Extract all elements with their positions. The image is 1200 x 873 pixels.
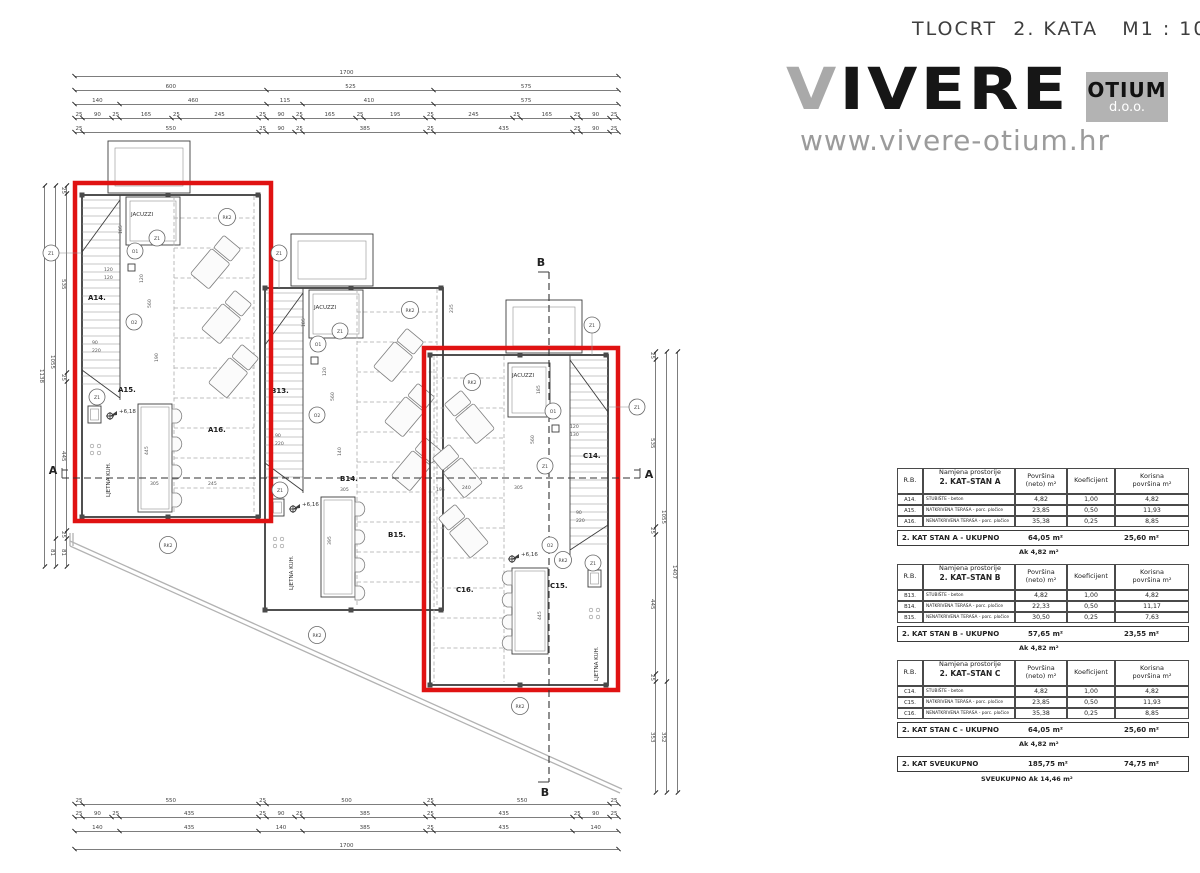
svg-text:195: 195 xyxy=(436,487,445,493)
header-name-line1: Namjena prostorije xyxy=(939,661,1001,669)
table-b-ak: Ak 4,82 m² xyxy=(1019,644,1189,653)
logo-otium-box: OTIUM d.o.o. xyxy=(1086,72,1168,122)
total-label: 2. KAT STAN B - UKUPNO xyxy=(898,630,1028,638)
header-area: Površina(neto) m² xyxy=(1015,564,1067,590)
cell-useful: 4,82 xyxy=(1115,686,1189,697)
cell-rb: B15. xyxy=(897,612,923,623)
level-b-label: +6,16 xyxy=(302,502,319,508)
table-b-total: 2. KAT STAN B - UKUPNO 57,65 m² 23,55 m² xyxy=(897,626,1189,642)
total-label: 2. KAT STAN A - UKUPNO xyxy=(898,534,1028,542)
cell-coef: 1,00 xyxy=(1067,686,1115,697)
logo-v-letter: V xyxy=(786,55,840,123)
cell-rb: A14. xyxy=(897,494,923,505)
cell-coef: 0,25 xyxy=(1067,612,1115,623)
cell-coef: 0,25 xyxy=(1067,516,1115,527)
room-a15-label: A15. xyxy=(118,386,136,394)
header-area: Površina(neto) m² xyxy=(1015,660,1067,686)
svg-text:120: 120 xyxy=(322,367,328,376)
svg-text:Z1: Z1 xyxy=(589,323,595,329)
svg-text:90: 90 xyxy=(275,433,281,439)
svg-text:305: 305 xyxy=(340,487,349,493)
header-use-line2: površina m² xyxy=(1133,481,1172,489)
header-subtitle-c: 2. KAT–STAN C xyxy=(940,669,1001,678)
cell-name: NATKRIVENA TERASA - porc. pločice xyxy=(923,601,1015,612)
svg-text:560: 560 xyxy=(330,392,336,401)
svg-text:235: 235 xyxy=(449,304,455,313)
cell-area: 4,82 xyxy=(1015,686,1067,697)
total-useful: 25,60 m² xyxy=(1124,534,1188,542)
header-coef: Koeficijent xyxy=(1067,468,1115,494)
table-row: A16. NENATKRIVENA TERASA - porc. pločice… xyxy=(897,516,1189,527)
plot-boundary xyxy=(70,533,622,793)
cell-name: STUBIŠTE - beton xyxy=(923,494,1015,505)
logo-doo-text: d.o.o. xyxy=(1109,101,1145,115)
section-a-a: A A xyxy=(49,464,654,481)
cell-name: NATKRIVENA TERASA - porc. pločice xyxy=(923,697,1015,708)
level-mark-a xyxy=(106,411,117,420)
svg-text:O2: O2 xyxy=(547,543,554,549)
cell-rb: A15. xyxy=(897,505,923,516)
table-c-ak: Ak 4,82 m² xyxy=(1019,740,1189,749)
cell-area: 35,38 xyxy=(1015,516,1067,527)
cell-area: 23,85 xyxy=(1015,505,1067,516)
svg-text:Z1: Z1 xyxy=(94,395,100,401)
cell-useful: 11,17 xyxy=(1115,601,1189,612)
svg-text:RK2: RK2 xyxy=(163,543,172,549)
cell-coef: 1,00 xyxy=(1067,494,1115,505)
cell-area: 23,85 xyxy=(1015,697,1067,708)
svg-text:O1: O1 xyxy=(550,409,557,415)
svg-text:O1: O1 xyxy=(132,249,139,255)
section-a-label-left: A xyxy=(49,464,58,477)
header-coef: Koeficijent xyxy=(1067,660,1115,686)
summary-total: 2. KAT SVEUKUPNO 185,75 m² 74,75 m² xyxy=(897,756,1189,772)
cell-useful: 4,82 xyxy=(1115,494,1189,505)
jacuzzi-b-label: JACUZZI xyxy=(313,305,336,311)
drawing-sheet: TLOCRT 2. KATA M1 : 100 VIVERE OTIUM d.o… xyxy=(0,0,1200,873)
svg-text:185: 185 xyxy=(536,385,542,394)
total-useful: 25,60 m² xyxy=(1124,726,1188,734)
company-url: www.vivere-otium.hr xyxy=(800,124,1110,157)
svg-text:560: 560 xyxy=(147,299,153,308)
svg-text:395: 395 xyxy=(327,536,333,545)
table-stan-c: R.B. Namjena prostorije2. KAT–STAN C Pov… xyxy=(897,660,1189,749)
svg-text:RK2: RK2 xyxy=(467,380,476,386)
cell-area: 4,82 xyxy=(1015,494,1067,505)
cell-rb: A16. xyxy=(897,516,923,527)
table-b-body: B13. STUBIŠTE - beton 4,82 1,00 4,82 B14… xyxy=(897,590,1189,623)
table-c-total: 2. KAT STAN C - UKUPNO 64,05 m² 25,60 m² xyxy=(897,722,1189,738)
svg-text:185: 185 xyxy=(118,225,124,234)
section-b-b: B B xyxy=(537,256,549,799)
table-a-ak: Ak 4,82 m² xyxy=(1019,548,1189,557)
svg-text:Z1: Z1 xyxy=(337,329,343,335)
svg-text:305: 305 xyxy=(150,481,159,487)
kitchen-b-label: LJETNA KUH. xyxy=(289,555,295,590)
cell-name: NATKRIVENA TERASA - porc. pločice xyxy=(923,505,1015,516)
table-b-header: R.B. Namjena prostorije2. KAT–STAN B Pov… xyxy=(897,564,1189,590)
summary-label: 2. KAT SVEUKUPNO xyxy=(898,760,1028,768)
header-useful: Korisnapovršina m² xyxy=(1115,564,1189,590)
svg-text:Z1: Z1 xyxy=(154,236,160,242)
cell-coef: 0,50 xyxy=(1067,505,1115,516)
header-subtitle-b: 2. KAT–STAN B xyxy=(940,573,1001,582)
table-row: C14. STUBIŠTE - beton 4,82 1,00 4,82 xyxy=(897,686,1189,697)
unit-c: JACUZZI C14. C15. C16. +6,16 LJETNA KUH.… xyxy=(428,300,609,688)
table-row: C15. NATKRIVENA TERASA - porc. pločice 2… xyxy=(897,697,1189,708)
svg-text:130: 130 xyxy=(570,432,579,438)
header-use-line2: površina m² xyxy=(1133,577,1172,585)
svg-text:RK2: RK2 xyxy=(312,633,321,639)
header-area-line2: (neto) m² xyxy=(1026,577,1057,585)
table-summary: 2. KAT SVEUKUPNO 185,75 m² 74,75 m² SVEU… xyxy=(897,756,1189,783)
cell-rb: C16. xyxy=(897,708,923,719)
kitchen-c-label: LJETNA KUH. xyxy=(594,646,600,681)
kitchen-a-label: LJETNA KUH. xyxy=(106,462,112,497)
svg-text:120: 120 xyxy=(104,267,113,273)
svg-text:Z1: Z1 xyxy=(542,464,548,470)
cell-useful: 8,85 xyxy=(1115,516,1189,527)
summer-kitchen-b xyxy=(271,497,365,600)
loungers-c xyxy=(431,390,494,558)
cell-area: 35,38 xyxy=(1015,708,1067,719)
summer-kitchen-c xyxy=(502,568,601,654)
summer-kitchen-a xyxy=(88,404,182,512)
svg-text:RK2: RK2 xyxy=(515,704,524,710)
svg-text:120: 120 xyxy=(104,275,113,281)
header-area: Površina(neto) m² xyxy=(1015,468,1067,494)
header-rb: R.B. xyxy=(897,564,923,590)
table-stan-b: R.B. Namjena prostorije2. KAT–STAN B Pov… xyxy=(897,564,1189,653)
header-useful: Korisnapovršina m² xyxy=(1115,468,1189,494)
svg-text:220: 220 xyxy=(576,518,585,524)
logo-otium-text: OTIUM xyxy=(1087,80,1166,101)
cell-area: 4,82 xyxy=(1015,590,1067,601)
table-c-body: C14. STUBIŠTE - beton 4,82 1,00 4,82 C15… xyxy=(897,686,1189,719)
unit-a: JACUZZI A14. A15. A16. +6,18 LJETNA KUH.… xyxy=(80,141,261,520)
svg-text:Z1: Z1 xyxy=(48,251,54,257)
table-a-header: R.B. Namjena prostorije2. KAT–STAN A Pov… xyxy=(897,468,1189,494)
fixture-c xyxy=(552,425,559,432)
section-b-label-top: B xyxy=(537,256,545,269)
room-a16-label: A16. xyxy=(208,426,226,434)
room-b14-label: B14. xyxy=(340,475,358,483)
cell-area: 22,33 xyxy=(1015,601,1067,612)
svg-text:560: 560 xyxy=(530,435,536,444)
total-useful: 23,55 m² xyxy=(1124,630,1188,638)
header-name-line1: Namjena prostorije xyxy=(939,565,1001,573)
header-subtitle-a: 2. KAT–STAN A xyxy=(939,477,1000,486)
summary-area: 185,75 m² xyxy=(1028,760,1100,768)
svg-text:RK2: RK2 xyxy=(558,558,567,564)
cell-area: 30,50 xyxy=(1015,612,1067,623)
cell-useful: 8,85 xyxy=(1115,708,1189,719)
svg-text:Z1: Z1 xyxy=(277,488,283,494)
cell-useful: 11,93 xyxy=(1115,505,1189,516)
table-stan-a: R.B. Namjena prostorije2. KAT–STAN A Pov… xyxy=(897,468,1189,557)
svg-text:140: 140 xyxy=(337,447,343,456)
header-coef: Koeficijent xyxy=(1067,564,1115,590)
level-c-label: +6,16 xyxy=(521,552,538,558)
svg-text:305: 305 xyxy=(514,485,523,491)
svg-text:Z1: Z1 xyxy=(276,251,282,257)
room-b13-label: B13. xyxy=(271,387,289,395)
header-area-line2: (neto) m² xyxy=(1026,673,1057,681)
cell-name: NENATKRIVENA TERASA - porc. pločice xyxy=(923,612,1015,623)
svg-text:190: 190 xyxy=(154,353,160,362)
header-rb: R.B. xyxy=(897,468,923,494)
room-c14-label: C14. xyxy=(583,452,601,460)
summary-ak: SVEUKUPNO Ak 14,46 m² xyxy=(981,775,1189,783)
header-name: Namjena prostorije2. KAT–STAN A xyxy=(923,468,1015,494)
level-mark-b xyxy=(289,504,300,513)
cell-name: NENATKRIVENA TERASA - porc. pločice xyxy=(923,708,1015,719)
cell-useful: 4,82 xyxy=(1115,590,1189,601)
header-name-line1: Namjena prostorije xyxy=(939,469,1001,477)
total-label: 2. KAT STAN C - UKUPNO xyxy=(898,726,1028,734)
room-c15-label: C15. xyxy=(550,582,568,590)
header-name: Namjena prostorije2. KAT–STAN B xyxy=(923,564,1015,590)
svg-text:90: 90 xyxy=(576,510,582,516)
cell-rb: B14. xyxy=(897,601,923,612)
room-c16-label: C16. xyxy=(456,586,474,594)
level-mark-c xyxy=(508,554,519,563)
jacuzzi-a-label: JACUZZI xyxy=(130,212,153,218)
table-row: A14. STUBIŠTE - beton 4,82 1,00 4,82 xyxy=(897,494,1189,505)
cell-coef: 0,50 xyxy=(1067,697,1115,708)
svg-text:220: 220 xyxy=(92,348,101,354)
table-row: B15. NENATKRIVENA TERASA - porc. pločice… xyxy=(897,612,1189,623)
loungers-a xyxy=(190,235,259,398)
skylight-c xyxy=(506,300,582,353)
floor-plan: JACUZZI A14. A15. A16. +6,18 LJETNA KUH.… xyxy=(0,0,700,873)
cell-useful: 7,63 xyxy=(1115,612,1189,623)
table-row: A15. NATKRIVENA TERASA - porc. pločice 2… xyxy=(897,505,1189,516)
total-area: 57,65 m² xyxy=(1028,630,1100,638)
svg-text:O2: O2 xyxy=(131,320,138,326)
table-row: B13. STUBIŠTE - beton 4,82 1,00 4,82 xyxy=(897,590,1189,601)
cell-coef: 0,25 xyxy=(1067,708,1115,719)
cell-name: STUBIŠTE - beton xyxy=(923,590,1015,601)
cell-name: NENATKRIVENA TERASA - porc. pločice xyxy=(923,516,1015,527)
table-a-body: A14. STUBIŠTE - beton 4,82 1,00 4,82 A15… xyxy=(897,494,1189,527)
svg-text:90: 90 xyxy=(92,340,98,346)
svg-text:120: 120 xyxy=(570,424,579,430)
svg-text:Z1: Z1 xyxy=(634,405,640,411)
area-tables: R.B. Namjena prostorije2. KAT–STAN A Pov… xyxy=(897,468,1189,790)
cell-useful: 11,93 xyxy=(1115,697,1189,708)
section-b-label-bottom: B xyxy=(541,786,549,799)
cell-coef: 1,00 xyxy=(1067,590,1115,601)
svg-text:120: 120 xyxy=(139,274,145,283)
jacuzzi-c xyxy=(508,363,550,417)
svg-text:245: 245 xyxy=(208,481,217,487)
room-b15-label: B15. xyxy=(388,531,406,539)
jacuzzi-c-label: JACUZZI xyxy=(511,373,534,379)
svg-text:RK2: RK2 xyxy=(405,308,414,314)
header-use-line2: površina m² xyxy=(1133,673,1172,681)
header-area-line2: (neto) m² xyxy=(1026,481,1057,489)
svg-text:185: 185 xyxy=(301,318,307,327)
table-c-header: R.B. Namjena prostorije2. KAT–STAN C Pov… xyxy=(897,660,1189,686)
cell-rb: C14. xyxy=(897,686,923,697)
cell-name: STUBIŠTE - beton xyxy=(923,686,1015,697)
cell-rb: B13. xyxy=(897,590,923,601)
fixture-b xyxy=(311,357,318,364)
loungers-b xyxy=(373,328,442,491)
svg-text:O1: O1 xyxy=(315,342,322,348)
svg-text:240: 240 xyxy=(462,485,471,491)
summary-useful: 74,75 m² xyxy=(1124,760,1188,768)
table-a-total: 2. KAT STAN A - UKUPNO 64,05 m² 25,60 m² xyxy=(897,530,1189,546)
level-a-label: +6,18 xyxy=(119,409,136,415)
section-a-label-right: A xyxy=(645,468,654,481)
room-a14-label: A14. xyxy=(88,294,106,302)
header-useful: Korisnapovršina m² xyxy=(1115,660,1189,686)
logo-rest-letters: IVERE xyxy=(840,55,1070,123)
total-area: 64,05 m² xyxy=(1028,726,1100,734)
total-area: 64,05 m² xyxy=(1028,534,1100,542)
plan-markers: Z1 Z1 Z1 Z1 Z1 Z1 Z1 Z1 Z1 Z1 O1 O1 O1 O… xyxy=(43,209,645,715)
svg-text:O2: O2 xyxy=(314,413,321,419)
cell-coef: 0,50 xyxy=(1067,601,1115,612)
svg-text:445: 445 xyxy=(144,446,150,455)
table-row: C16. NENATKRIVENA TERASA - porc. pločice… xyxy=(897,708,1189,719)
svg-text:Z1: Z1 xyxy=(590,561,596,567)
header-rb: R.B. xyxy=(897,660,923,686)
svg-text:220: 220 xyxy=(275,441,284,447)
drawing-title: TLOCRT 2. KATA M1 : 100 xyxy=(912,18,1200,40)
table-row: B14. NATKRIVENA TERASA - porc. pločice 2… xyxy=(897,601,1189,612)
header-name: Namjena prostorije2. KAT–STAN C xyxy=(923,660,1015,686)
skylight-b xyxy=(291,234,373,286)
cell-rb: C15. xyxy=(897,697,923,708)
svg-text:RK2: RK2 xyxy=(222,215,231,221)
logo-vivere: VIVERE xyxy=(786,60,1070,118)
fixture-a xyxy=(128,264,135,271)
svg-text:445: 445 xyxy=(537,611,543,620)
